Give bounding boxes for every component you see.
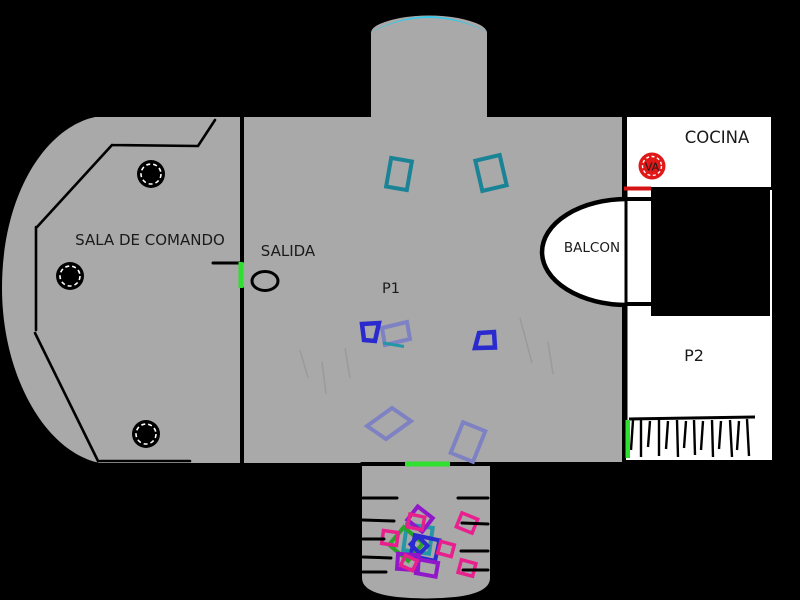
label-balcon: BALCON <box>564 240 620 256</box>
hatch-circle <box>137 160 165 188</box>
door-salida-green <box>239 262 244 288</box>
hatch-circle <box>132 420 160 448</box>
label-p2: P2 <box>684 346 704 365</box>
label-cocina: COCINA <box>685 128 750 147</box>
void-block <box>651 190 770 316</box>
label-sala-de-comando: SALA DE COMANDO <box>75 231 225 249</box>
door-stairs-green <box>626 420 631 458</box>
label-salida: SALIDA <box>261 242 316 260</box>
floor-plan-stage: VA <box>0 0 800 600</box>
door-bottom-green <box>405 462 450 467</box>
valve-va: VA <box>639 153 666 180</box>
hatch-circle <box>56 262 84 290</box>
valve-label: VA <box>645 161 660 174</box>
label-p1: P1 <box>382 281 400 297</box>
floor-plan-canvas: VA <box>0 0 800 600</box>
